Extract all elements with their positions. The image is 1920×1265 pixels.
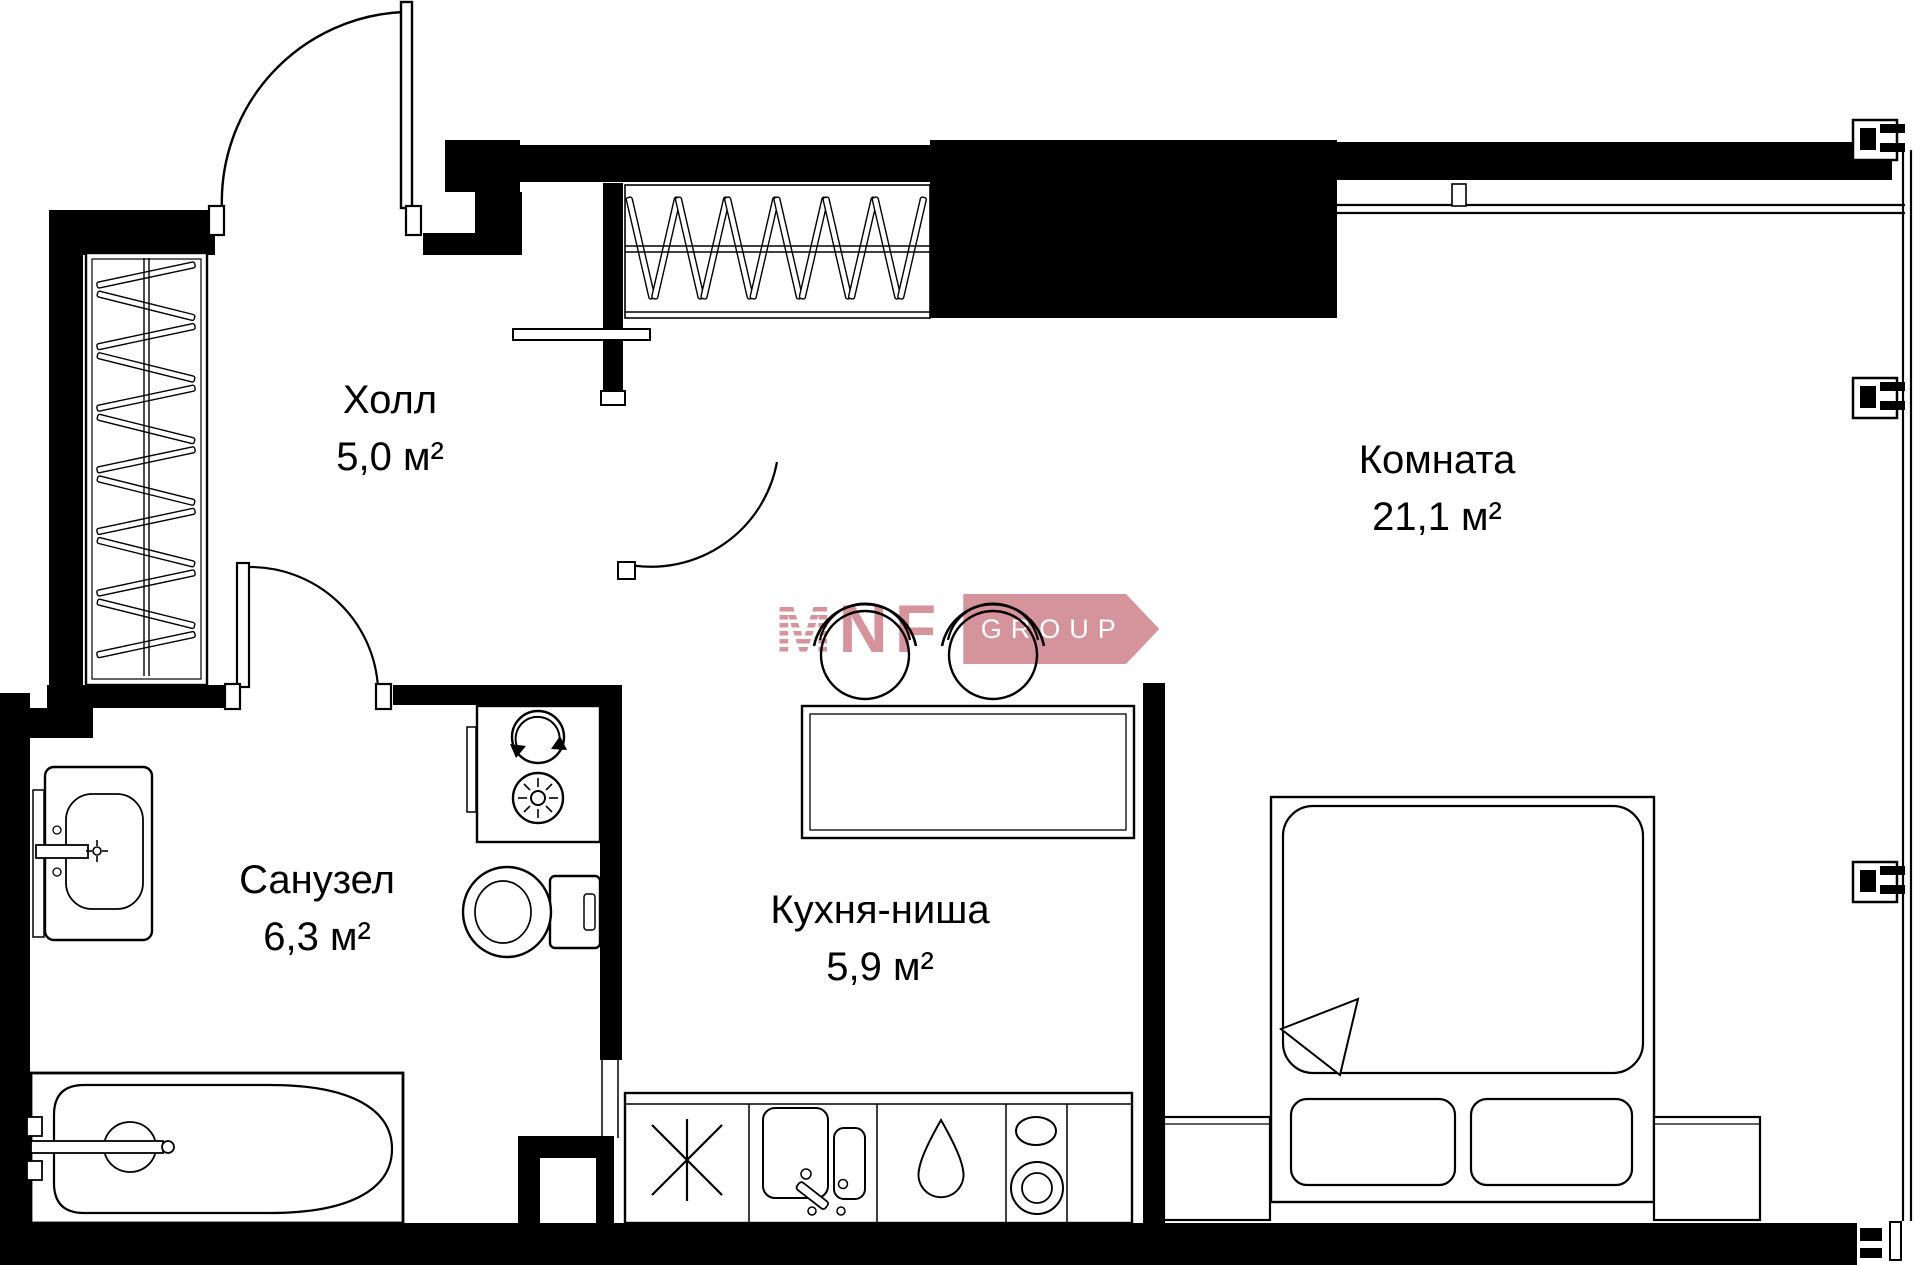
wall-segment bbox=[480, 145, 930, 182]
toilet bbox=[463, 867, 600, 957]
wall-segment bbox=[518, 1158, 540, 1223]
window-band-top bbox=[1337, 184, 1905, 213]
entrance-door bbox=[209, 2, 421, 235]
floor-plan: MNF GROUP bbox=[0, 0, 1920, 1265]
door-swing-arc bbox=[249, 567, 378, 688]
bathtub bbox=[27, 1073, 403, 1223]
wall-segment bbox=[600, 705, 622, 1060]
room-label-kitchen: Кухня-ниша 5,9 м² bbox=[770, 882, 989, 996]
room-name: Санузел bbox=[239, 852, 395, 909]
window-connector bbox=[1853, 378, 1905, 418]
room-name: Холл bbox=[336, 372, 444, 429]
room-label-room: Комната 21,1 м² bbox=[1359, 432, 1516, 546]
washer-dryer-stack bbox=[467, 706, 600, 842]
wall-segment bbox=[596, 1158, 614, 1223]
door-swing-arc bbox=[630, 462, 777, 567]
nightstand bbox=[1654, 1117, 1760, 1220]
door-jamb bbox=[225, 684, 240, 709]
room-area: 5,0 м² bbox=[336, 429, 444, 486]
window-corner-bottom-right bbox=[1857, 1221, 1920, 1265]
partition-lines bbox=[602, 1058, 618, 1138]
wall-segment bbox=[0, 693, 30, 1265]
wall-segment bbox=[930, 140, 1337, 318]
room-area: 21,1 м² bbox=[1359, 489, 1516, 546]
faucet-icon bbox=[36, 845, 88, 858]
wall-segment bbox=[518, 1136, 614, 1158]
door-leaf bbox=[401, 2, 412, 208]
door-jamb bbox=[601, 391, 625, 405]
door-jamb bbox=[376, 684, 391, 709]
bar-stool bbox=[942, 604, 1044, 699]
washbasin bbox=[33, 767, 152, 940]
room-name: Кухня-ниша bbox=[770, 882, 989, 939]
wall-segment bbox=[423, 233, 522, 255]
tub-faucet-icon bbox=[31, 1141, 163, 1153]
room-door bbox=[513, 329, 777, 579]
nightstand bbox=[1164, 1117, 1270, 1220]
wall-segment bbox=[0, 1223, 1857, 1265]
bed bbox=[1271, 797, 1654, 1202]
wall-segment bbox=[1143, 683, 1165, 1223]
kitchen-counter bbox=[625, 1093, 1132, 1223]
window-connector bbox=[1853, 120, 1905, 160]
door-jamb bbox=[618, 562, 635, 579]
wall-segment bbox=[603, 183, 623, 393]
pillow bbox=[1471, 1099, 1632, 1185]
door-jamb bbox=[406, 206, 421, 235]
door-swing-arc bbox=[222, 12, 403, 210]
window-wall-right bbox=[1853, 120, 1920, 1265]
window-connector bbox=[1853, 862, 1905, 902]
wall-segment bbox=[1337, 142, 1892, 180]
wall-segment bbox=[30, 708, 93, 738]
door-leaf bbox=[513, 329, 650, 340]
plan-geometry bbox=[0, 0, 1920, 1265]
bar-stool bbox=[814, 604, 916, 699]
hall-closet bbox=[625, 185, 930, 318]
bathroom-door bbox=[225, 563, 391, 709]
room-name: Комната bbox=[1359, 432, 1516, 489]
room-label-bathroom: Санузел 6,3 м² bbox=[239, 852, 395, 966]
room-label-hall: Холл 5,0 м² bbox=[336, 372, 444, 486]
dining-table bbox=[802, 706, 1134, 838]
door-leaf bbox=[237, 563, 249, 687]
pillow bbox=[1291, 1099, 1455, 1185]
wall-segment bbox=[49, 210, 83, 693]
window-mullion bbox=[1452, 184, 1466, 206]
wall-segment bbox=[393, 685, 622, 705]
room-area: 5,9 м² bbox=[770, 939, 989, 996]
room-area: 6,3 м² bbox=[239, 909, 395, 966]
wall-segment bbox=[47, 685, 227, 708]
hall-wardrobe bbox=[86, 253, 207, 685]
door-jamb bbox=[209, 206, 224, 235]
wall-segment bbox=[475, 192, 522, 233]
